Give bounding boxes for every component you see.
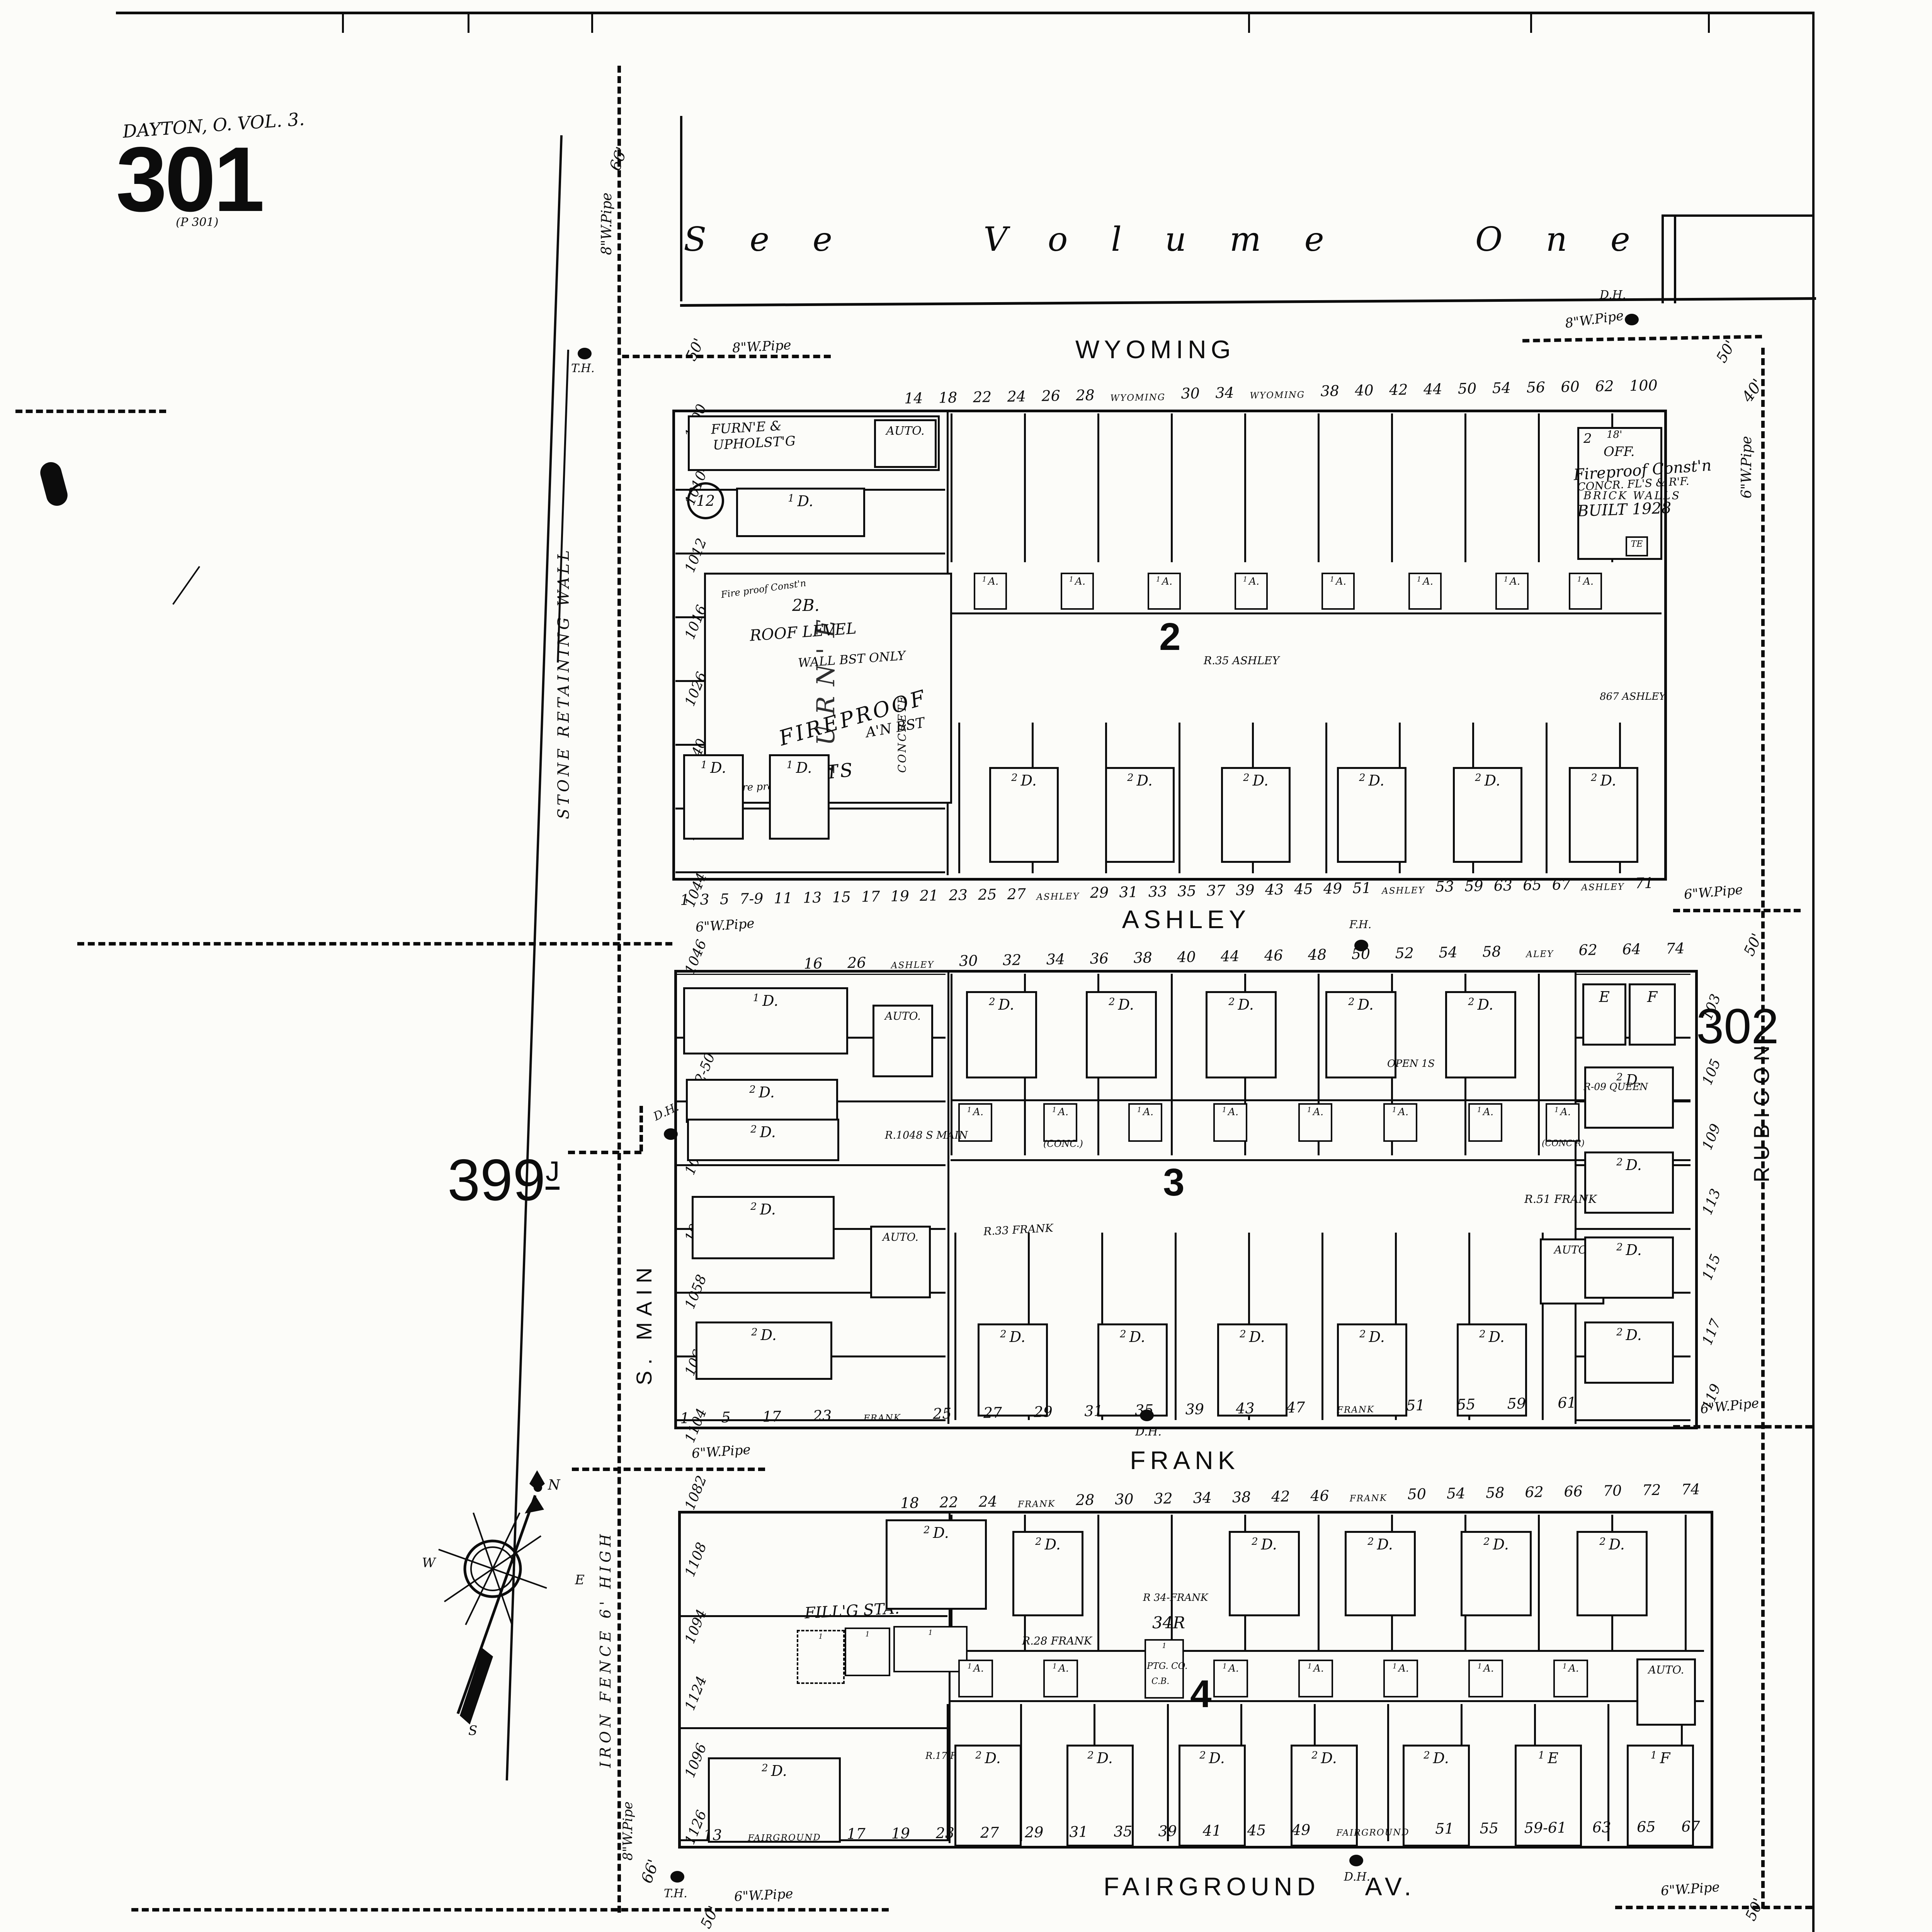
- dwelling-label: F: [1660, 1750, 1670, 1767]
- banner-right-line2: [1674, 214, 1676, 303]
- story-count: 1: [1563, 1663, 1567, 1670]
- dwelling: 2D.: [1584, 1066, 1674, 1129]
- story-count: 2: [1240, 1328, 1246, 1340]
- dwelling: 2D.: [1584, 1321, 1674, 1384]
- story-count: 2: [750, 1201, 757, 1213]
- dwelling-label: D.: [1045, 1536, 1061, 1553]
- story-count: 1: [787, 759, 793, 771]
- street-frank: FRANK: [1130, 1447, 1240, 1474]
- house-number: 27: [1007, 885, 1026, 903]
- story-count: 2: [1120, 1328, 1126, 1340]
- ref-ptg: PTG. CO.: [1147, 1662, 1187, 1671]
- fp-width: 18': [1607, 430, 1622, 440]
- shed-a: 1A.: [1321, 573, 1355, 610]
- shed-a: 1A.: [1213, 1103, 1247, 1142]
- auto-label: AUTO.: [885, 1010, 921, 1022]
- house-number: 67: [1681, 1818, 1700, 1835]
- block-3-number: 3: [1163, 1162, 1185, 1203]
- story-count: 2: [1127, 772, 1133, 784]
- house-number: 19: [890, 888, 909, 905]
- house-number: 29: [1090, 884, 1109, 901]
- story-count: 2: [1468, 996, 1474, 1008]
- filling-station-bldg: 1: [797, 1630, 845, 1684]
- house-number: 22: [973, 388, 992, 406]
- shed-a: 1A.: [1553, 1660, 1588, 1697]
- story-count: 2: [1616, 1156, 1622, 1168]
- shed-label: A.: [1560, 1106, 1571, 1118]
- border-tick: [1708, 12, 1710, 33]
- frank-pipe-west-label: 6"W.Pipe: [691, 1443, 751, 1461]
- dwelling: 2D.: [696, 1321, 832, 1380]
- ref-r1048: R.1048 S MAIN: [885, 1130, 968, 1141]
- story-count: 2: [1252, 1536, 1258, 1548]
- house-number: 61: [1558, 1394, 1577, 1412]
- dwelling-label: D.: [1209, 1750, 1225, 1767]
- wyoming-width-east: 50': [1714, 338, 1738, 366]
- house-number: 32: [1003, 951, 1022, 969]
- street-ashley: ASHLEY: [1122, 906, 1250, 933]
- ink-blob: [38, 460, 70, 508]
- dwelling-label: D.: [1129, 1328, 1145, 1345]
- house-number: 50: [1351, 945, 1370, 963]
- shed-label: A.: [1568, 1663, 1579, 1674]
- house-number: 29: [1034, 1403, 1053, 1420]
- building-auto: AUTO.: [870, 1226, 931, 1298]
- dwelling: 2D.: [1086, 991, 1157, 1078]
- dwelling: 2D.: [1221, 767, 1291, 863]
- dwelling: 1D.: [683, 987, 848, 1054]
- story-count: 1: [1538, 1750, 1544, 1761]
- dwelling-e: E: [1582, 983, 1626, 1046]
- wyoming-pipe-west-label: 8"W.Pipe: [732, 338, 791, 355]
- hydrant-dot: [670, 1871, 684, 1883]
- house-number: 42: [1389, 381, 1408, 398]
- block-2-number: 2: [1159, 617, 1181, 657]
- shed-label: A.: [1228, 1663, 1239, 1674]
- story-count: 2: [1591, 772, 1597, 784]
- house-number: 5: [721, 1409, 731, 1426]
- house-number: 24: [978, 1493, 997, 1510]
- dwelling-label: D.: [1377, 1536, 1393, 1553]
- story-count: 1: [1162, 1642, 1166, 1650]
- dwelling-label: D.: [1118, 996, 1134, 1013]
- sanborn-map-sheet: DAYTON, O. VOL. 3. 301 (P 301) See Volum…: [0, 0, 1932, 1932]
- house-number: 74: [1681, 1481, 1700, 1498]
- house-number: 36: [1090, 950, 1109, 967]
- dwelling-label: D.: [1433, 1750, 1449, 1767]
- story-count: 1: [982, 576, 986, 583]
- dwelling-label: D.: [933, 1524, 949, 1541]
- fp-office: OFF.: [1604, 445, 1635, 459]
- s-main-pipe-line: [617, 66, 621, 1913]
- house-number: 52: [1395, 944, 1414, 962]
- house-number: 47: [1286, 1399, 1305, 1416]
- shed-a: 1A.: [1128, 1103, 1162, 1142]
- story-count: 1: [1307, 1106, 1311, 1114]
- shed-label: A.: [1075, 576, 1085, 587]
- house-number: 30: [1115, 1491, 1134, 1508]
- story-count: 2: [1087, 1750, 1094, 1761]
- wyoming-width-west: 50': [684, 336, 707, 363]
- story-count: 2: [751, 1327, 757, 1338]
- house-number: 3: [700, 891, 709, 908]
- story-count: 2: [1616, 1242, 1622, 1253]
- building-dwelling: 1D.: [736, 488, 865, 537]
- story-count: 1: [1392, 1106, 1396, 1114]
- house-number: 19: [891, 1825, 910, 1842]
- compass-rose: [421, 1466, 607, 1768]
- banner-right-top: [1662, 214, 1814, 217]
- fairground-pipe-east-label: 6"W.Pipe: [1660, 1881, 1720, 1898]
- house-number: 105: [1699, 1060, 1723, 1087]
- story-count: 2: [762, 1762, 768, 1774]
- block-2-lot-lines-bottom: [958, 723, 1662, 873]
- ref-867-ashley: 867 ASHLEY: [1600, 692, 1666, 702]
- house-number: 38: [1133, 949, 1152, 966]
- fairground-pipe-west-label: 6"W.Pipe: [734, 1887, 793, 1904]
- shed-label: A.: [1228, 1106, 1238, 1118]
- shed-a: 1A.: [1148, 573, 1181, 610]
- ref-open: OPEN 1S: [1387, 1059, 1435, 1069]
- house-number: 55: [1480, 1820, 1498, 1837]
- house-number: 31: [1084, 1402, 1103, 1420]
- story-count: 2: [1367, 1536, 1374, 1548]
- compass-s: S: [468, 1724, 477, 1738]
- dwelling-label: D.: [771, 1762, 787, 1779]
- s-main-pipe-label-bottom: 8"W.Pipe: [621, 1801, 635, 1861]
- dwelling-label: D.: [1021, 772, 1037, 789]
- house-number: 42: [1271, 1488, 1290, 1505]
- dwelling-label: D.: [1358, 996, 1374, 1013]
- house-number: 30: [1181, 385, 1200, 402]
- house-number: 22: [939, 1493, 958, 1511]
- hydrant-dh-label: D.H.: [1135, 1426, 1162, 1438]
- house-number: 54: [1439, 944, 1458, 961]
- hydrant-dot: [1140, 1410, 1154, 1421]
- shed-label: A.: [1398, 1106, 1408, 1118]
- story-count: 1: [1137, 1106, 1141, 1114]
- shed-a: 1A.: [1468, 1103, 1502, 1142]
- house-number: 33: [1148, 883, 1167, 900]
- house-number: 64: [1622, 940, 1641, 958]
- house-number: 63: [1493, 877, 1512, 894]
- story-count: 2: [1199, 1750, 1206, 1761]
- story-count: 2: [923, 1524, 930, 1536]
- conc-note: (CONC.): [1043, 1139, 1083, 1149]
- dwelling-label: D.: [1609, 1536, 1625, 1553]
- house-number: 54: [1492, 379, 1511, 397]
- house-number: 1: [680, 1410, 690, 1427]
- house-number: 72: [1642, 1481, 1661, 1499]
- shed-a: 1A.: [1043, 1660, 1078, 1697]
- house-number: 74: [1666, 940, 1685, 957]
- ashley-pipe-west-label: 6"W.Pipe: [695, 917, 755, 935]
- border-tick: [1530, 12, 1532, 33]
- shed-label: A.: [973, 1663, 984, 1674]
- house-number: 50: [1458, 380, 1477, 397]
- story-count: 2: [1000, 1328, 1006, 1340]
- house-number: 39: [1185, 1401, 1204, 1418]
- house-number: 25: [933, 1405, 952, 1422]
- house-number: 31: [1069, 1823, 1088, 1840]
- hydrant-dh-label: D.H.: [1344, 1871, 1370, 1883]
- shed-a: 1A.: [1383, 1103, 1417, 1142]
- house-number: 63: [1592, 1819, 1611, 1836]
- top-border: [116, 12, 1814, 14]
- house-number: 51: [1406, 1397, 1425, 1414]
- te-label: TE: [1631, 539, 1643, 549]
- story-count: 1: [1156, 576, 1160, 583]
- ref-r35-ashley: R.35 ASHLEY: [1204, 655, 1279, 666]
- border-tick: [342, 12, 344, 33]
- building-te: TE: [1626, 536, 1648, 556]
- fp-stories: 2: [1583, 432, 1592, 446]
- auto-label: AUTO.: [1648, 1663, 1684, 1676]
- wyoming-pipe-margin-line: [15, 410, 166, 413]
- hydrant-dot: [578, 348, 592, 359]
- house-number: 5: [719, 891, 729, 908]
- dwelling: 2D.: [1577, 1531, 1648, 1616]
- story-count: 1: [1053, 1663, 1057, 1670]
- wyoming-house-numbers: 141822242628WYOMING3034WYOMING3840424450…: [904, 377, 1658, 407]
- story-count: 2: [1599, 1536, 1605, 1548]
- house-number: WYOMING: [1110, 392, 1165, 403]
- compass-n: N: [548, 1478, 560, 1493]
- dwelling-label: D.: [796, 759, 812, 776]
- story-count: 2: [1359, 772, 1365, 784]
- rubicon-house-numbers: 103105109113115117119: [1699, 1001, 1723, 1406]
- shed-a: 1A.: [1468, 1660, 1503, 1697]
- house-number: 45: [1247, 1822, 1266, 1839]
- house-number: 37: [1207, 882, 1226, 899]
- house-number: 58: [1486, 1484, 1505, 1502]
- plate-ref: (P 301): [176, 216, 218, 229]
- street-wyoming: WYOMING: [1075, 336, 1235, 363]
- compass-w: W: [422, 1556, 435, 1570]
- apt-furn-vertical: FURN'E: [813, 609, 839, 773]
- dwelling-label: D.: [759, 1084, 775, 1101]
- house-number: 66: [1564, 1483, 1583, 1500]
- dwelling: 2D.: [966, 991, 1037, 1078]
- building-auto-garage: AUTO.: [874, 419, 937, 468]
- retaining-wall-label: STONE RETAINING WALL: [556, 547, 572, 819]
- house-number: 40: [1355, 382, 1374, 399]
- auto-label: AUTO.: [883, 1231, 918, 1243]
- house-number: 23: [813, 1407, 832, 1424]
- story-count: 1: [1417, 576, 1421, 583]
- house-number: 44: [1221, 947, 1240, 965]
- dwelling-label: D.: [760, 1201, 776, 1218]
- block-3-alley-line2: [951, 1159, 1690, 1161]
- story-count: 1: [1223, 1663, 1227, 1670]
- dwelling-label: D.: [798, 493, 813, 510]
- shed-a: 1A.: [1061, 573, 1094, 610]
- story-count: 1: [1243, 576, 1247, 583]
- house-number: 59: [1464, 878, 1483, 895]
- house-number: 28: [1076, 386, 1095, 404]
- house-number: 23: [936, 1825, 955, 1842]
- dwelling: 2D.: [1325, 991, 1396, 1078]
- circled-lot-number: 12: [687, 482, 724, 519]
- fp-line4: BUILT 1928: [1577, 500, 1672, 519]
- dwelling: 2D.: [978, 1323, 1048, 1417]
- story-count: 2: [1035, 1536, 1041, 1548]
- house-number: 51: [1352, 879, 1371, 897]
- house-number: 43: [1236, 1400, 1255, 1417]
- dwelling-label: D.: [1626, 1156, 1642, 1173]
- house-number: 115: [1699, 1255, 1723, 1282]
- house-number: FRANK: [864, 1413, 901, 1423]
- house-number: 71: [1635, 874, 1654, 892]
- dwelling: 2D.: [686, 1079, 838, 1123]
- circled-12: 12: [696, 492, 715, 509]
- story-count: 2: [975, 1750, 981, 1761]
- house-number: 59: [1507, 1395, 1526, 1412]
- banner-bottom-line: [680, 297, 1816, 307]
- house-number: 1: [680, 891, 690, 908]
- story-count: 1: [1222, 1106, 1226, 1114]
- house-number: FRANK: [1337, 1405, 1375, 1415]
- shed-label: A.: [1336, 576, 1346, 587]
- story-count: 1: [968, 1663, 972, 1670]
- block-4-alley-line: [951, 1650, 1704, 1652]
- story-count: 2: [1359, 1328, 1366, 1340]
- house-number: 35: [1114, 1823, 1133, 1840]
- house-number: 35: [1177, 883, 1196, 900]
- story-count: 2: [1311, 1750, 1318, 1761]
- building-auto: AUTO.: [872, 1005, 933, 1077]
- story-count: 2: [1616, 1327, 1622, 1338]
- shed-a: 1A.: [1383, 1660, 1418, 1697]
- shed-a: 1A.: [958, 1660, 993, 1697]
- dwelling: 2D.: [1584, 1236, 1674, 1299]
- dwelling-label: D.: [1600, 772, 1616, 789]
- border-tick: [468, 12, 469, 33]
- house-number: 62: [1525, 1483, 1544, 1501]
- ref-leader-line: [568, 1151, 641, 1154]
- dwelling-label: D.: [1489, 1328, 1505, 1345]
- house-number: 113: [1699, 1190, 1723, 1217]
- house-number: FAIRGROUND: [1336, 1827, 1410, 1838]
- dwelling: 2D.: [1012, 1531, 1083, 1616]
- house-number: 56: [1526, 379, 1545, 396]
- story-count: 1: [967, 1106, 971, 1114]
- house-number: 17: [861, 888, 880, 905]
- s-main-width-south: 66': [639, 1857, 662, 1886]
- house-number: 38: [1320, 382, 1339, 400]
- shed-a: 1A.: [1546, 1103, 1580, 1142]
- house-number: 7-9: [740, 890, 764, 907]
- house-number: 39: [1158, 1823, 1177, 1840]
- ref-leader-line-v: [639, 1106, 643, 1151]
- house-number: 27: [983, 1404, 1002, 1422]
- house-number: 29: [1025, 1824, 1044, 1841]
- dwelling: 2D.: [687, 1119, 839, 1161]
- house-number: 65: [1637, 1818, 1656, 1835]
- story-count: 1: [1330, 576, 1334, 583]
- dwelling: 2D.: [886, 1519, 987, 1610]
- story-count: 2: [1348, 996, 1354, 1008]
- house-number: ASHLEY: [891, 960, 934, 971]
- house-number: 49: [1292, 1821, 1311, 1838]
- banner-text: See Volume One: [684, 222, 1673, 257]
- s-main-pipe-label-top: 8"W.Pipe: [600, 192, 614, 255]
- house-number: 45: [1294, 880, 1313, 898]
- dwelling: 2D.: [1584, 1151, 1674, 1214]
- ref-rqueen: R-09 QUEEN: [1583, 1082, 1648, 1092]
- house-number: ALEY: [1526, 949, 1554, 959]
- house-number: 15: [832, 888, 851, 906]
- story-count: 1: [1477, 1106, 1481, 1114]
- dwelling-label: D.: [710, 759, 726, 776]
- house-number: 18: [939, 389, 957, 406]
- adjacent-sheet-left: 399: [447, 1150, 546, 1211]
- block-2-lot-lines-top: [951, 413, 1662, 562]
- shed-label: A.: [1143, 1106, 1153, 1118]
- shed-a: 1A.: [1213, 1660, 1248, 1697]
- story-count: 1: [1393, 1663, 1397, 1670]
- dwelling: 2D.: [1345, 1531, 1416, 1616]
- house-number: 40: [1177, 948, 1196, 966]
- story-count: 1: [1052, 1106, 1056, 1114]
- shed-label: A.: [1162, 576, 1172, 587]
- story-count: 2: [1228, 996, 1235, 1008]
- compass-e: E: [575, 1573, 585, 1587]
- house-number: 24: [1007, 388, 1026, 405]
- hydrant-th-label: T.H.: [664, 1888, 687, 1900]
- story-count: 1: [753, 992, 759, 1004]
- block-3-inner-line-left: [947, 970, 949, 1424]
- dwelling-label: F: [1647, 988, 1657, 1005]
- house-number: FRANK: [1018, 1499, 1056, 1510]
- house-number: 26: [847, 954, 866, 971]
- shed-label: A.: [1313, 1106, 1323, 1118]
- story-count: 2: [1109, 996, 1115, 1008]
- dwelling: 1D.: [769, 754, 830, 840]
- fairground-pipe-east-line: [1615, 1906, 1812, 1909]
- dwelling-label: D.: [1626, 1327, 1642, 1344]
- block-4-number: 4: [1190, 1674, 1212, 1714]
- shed-a: 1A.: [1495, 573, 1529, 610]
- dwelling-label: D.: [1097, 1750, 1113, 1767]
- dwelling: 2D.: [1105, 767, 1175, 863]
- dwelling-label: D.: [762, 992, 778, 1009]
- shed-label: A.: [1313, 1663, 1324, 1674]
- dwelling-label: D.: [1261, 1536, 1277, 1553]
- hydrant-dot: [1625, 314, 1639, 325]
- shed-label: A.: [1483, 1106, 1493, 1118]
- dwelling: 2D.: [692, 1196, 835, 1259]
- story-count: 1: [701, 759, 707, 771]
- dwelling: 2D.: [989, 767, 1059, 863]
- house-number: 59-61: [1524, 1819, 1566, 1837]
- dwelling-label: D.: [1253, 772, 1269, 789]
- ref-34r: 34R: [1152, 1614, 1185, 1631]
- hydrant-th-label: T.H.: [571, 362, 595, 375]
- dwelling: 2D.: [1453, 767, 1522, 863]
- house-number: 41: [1202, 1822, 1221, 1839]
- house-number: 26: [1041, 387, 1060, 405]
- dwelling-label: D.: [1249, 1328, 1265, 1345]
- shed-a: 1A.: [1569, 573, 1602, 610]
- story-count: 2: [750, 1124, 757, 1135]
- house-number: ASHLEY: [1382, 885, 1425, 896]
- house-number: 58: [1482, 943, 1501, 960]
- house-number: 50: [1407, 1485, 1426, 1503]
- shed-label: A.: [1423, 576, 1433, 587]
- house-number: 18: [900, 1494, 919, 1512]
- house-number: 39: [1236, 881, 1255, 899]
